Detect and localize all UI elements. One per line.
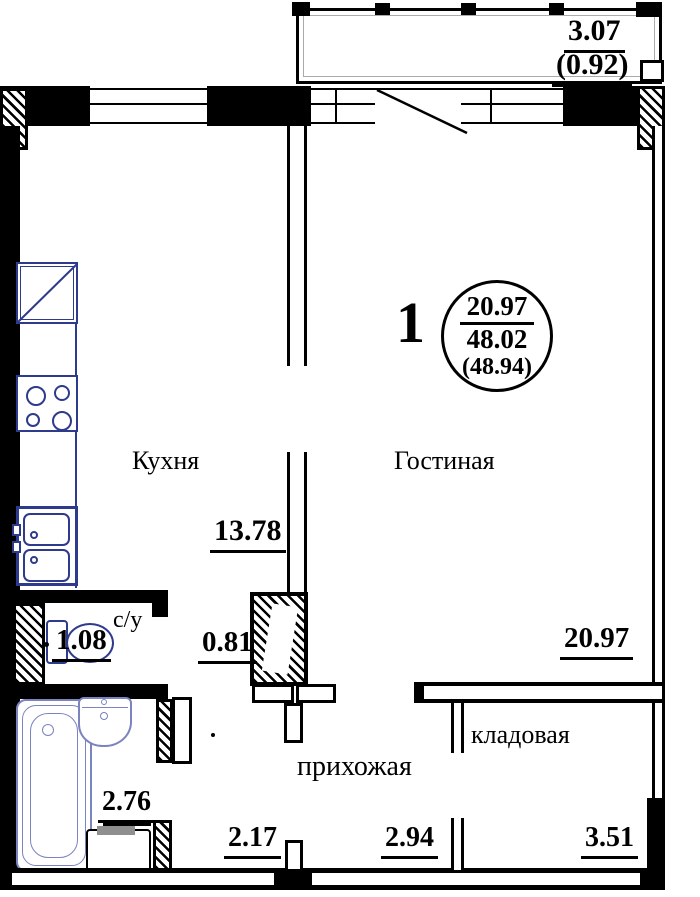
door-jamb [284,703,303,743]
sink-tap [12,524,21,536]
balcony-corner-post [640,60,664,82]
storage-label: кладовая [471,722,570,748]
washing-machine-icon [86,829,151,872]
wall-right [652,126,665,872]
bathtub-drain [42,724,54,736]
stamp-area-with-balcony: (48.94) [462,355,532,380]
balcony-tick [461,3,476,15]
balcony-tick [636,2,662,17]
wall-bottom [0,868,665,890]
fridge-icon [20,266,74,320]
balcony-door-opening [375,88,461,124]
stamp-total-area: 48.02 [467,325,528,355]
door-jamb [285,840,303,872]
sink-tap [12,541,21,553]
apartment-number: 1 [396,294,425,352]
balcony-area-label: (0.92) [552,50,632,87]
door-jamb [252,684,294,703]
partition-kitchen-living-upper [287,126,307,366]
bathtub-icon [30,713,78,858]
stove-burner [52,411,72,431]
door-jamb [296,684,336,703]
kitchen-label: Кухня [132,448,199,474]
bathroom-dimension: 2.76 [98,788,155,823]
washbasin-faucet [100,712,108,720]
window-mullion [490,88,492,124]
balcony-tick [549,3,564,15]
plot-dot [211,733,215,737]
living-room-label: Гостиная [394,448,495,474]
sink-drain [30,556,38,564]
vent-shaft-duct [262,603,298,674]
kitchen-window [90,88,207,124]
storage-top-wall [414,682,662,703]
wall-bottom-cap [640,868,665,890]
sink-drain [30,531,38,539]
storage-partition-upper [451,703,464,753]
wc-top-wall [8,590,168,603]
wc-vent-duct [13,603,45,685]
hallway-dimension-left: 2.17 [224,824,281,859]
kitchen-dimension: 13.78 [210,516,286,553]
window-mullion [335,88,337,124]
stove-burner [54,385,70,401]
living-window-right [461,88,563,124]
area-stamp: 20.97 48.02 (48.94) [441,280,553,392]
washing-machine-top [97,826,135,835]
wall-right-bottom-pier [647,798,665,874]
storage-top-wall-cap [414,682,424,703]
partition-kitchen-living-lower [287,452,307,592]
wc-label: с/у [113,608,142,632]
wc-dimension: 1.08 [52,626,111,662]
washbasin-icon [82,707,128,708]
bathroom-door-leaf [172,697,192,764]
hallway-dimension-right: 2.94 [381,824,438,859]
living-dimension: 20.97 [560,624,633,660]
washbasin-faucet [101,699,107,705]
living-window-left [311,88,375,124]
stamp-living-area: 20.97 [460,292,535,325]
wc-top-wall-stub [152,601,168,617]
wall-bottom-cap [0,868,12,890]
bathroom-duct-upper [156,699,173,763]
balcony-tick [292,2,310,16]
sink-basin [23,513,70,546]
stove-burner [26,386,46,406]
bathroom-duct-lower [153,820,172,872]
stove-burner [26,413,40,427]
plot-dot [44,642,49,647]
sink-basin [23,549,70,582]
floor-plan: 3.07 (0.92) [0,0,700,897]
hallway-label: прихожая [297,753,412,781]
vent-shaft-dimension: 0.81 [198,628,257,664]
wall-top-pier-mid [207,86,311,126]
storage-partition-lower [451,818,464,870]
vent-shaft [250,592,308,686]
balcony-tick [375,3,390,15]
storage-dimension: 3.51 [581,824,638,859]
